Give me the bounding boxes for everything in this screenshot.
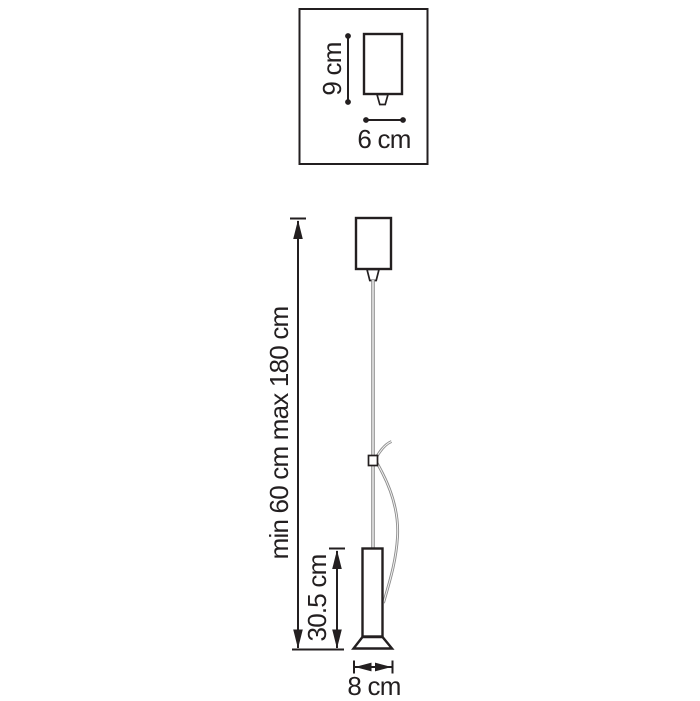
- cord-clamp: [369, 456, 378, 466]
- lamp-cone: [354, 637, 393, 649]
- canopy-nub: [367, 270, 379, 281]
- dimension-drawing: 9 cm 6 cm min 60 cm max 180 cm 30.5 cm 8…: [0, 0, 700, 700]
- body-dim-arrow-up: [332, 550, 342, 569]
- body-dim-arrow-down: [332, 630, 342, 649]
- suspension-range-label: min 60 cm max 180 cm: [266, 307, 292, 560]
- line-art: [0, 0, 700, 700]
- inset-canopy: [364, 34, 402, 94]
- base-width-label: 8 cm: [347, 673, 400, 699]
- inset-width-dim-dot-right: [400, 117, 406, 123]
- suspension-dim-arrow-up: [293, 220, 303, 239]
- inset-height-dim-dot-top: [345, 33, 351, 39]
- inset-height-dim-dot-bottom: [345, 99, 351, 105]
- body-height-label: 30.5 cm: [304, 555, 330, 642]
- lamp-body-cylinder: [363, 549, 383, 637]
- inset-height-label: 9 cm: [319, 42, 345, 95]
- inset-canopy-nub: [377, 95, 388, 105]
- inset-width-dim-dot-left: [363, 117, 369, 123]
- canopy: [356, 218, 391, 269]
- inset-width-label: 6 cm: [357, 126, 410, 152]
